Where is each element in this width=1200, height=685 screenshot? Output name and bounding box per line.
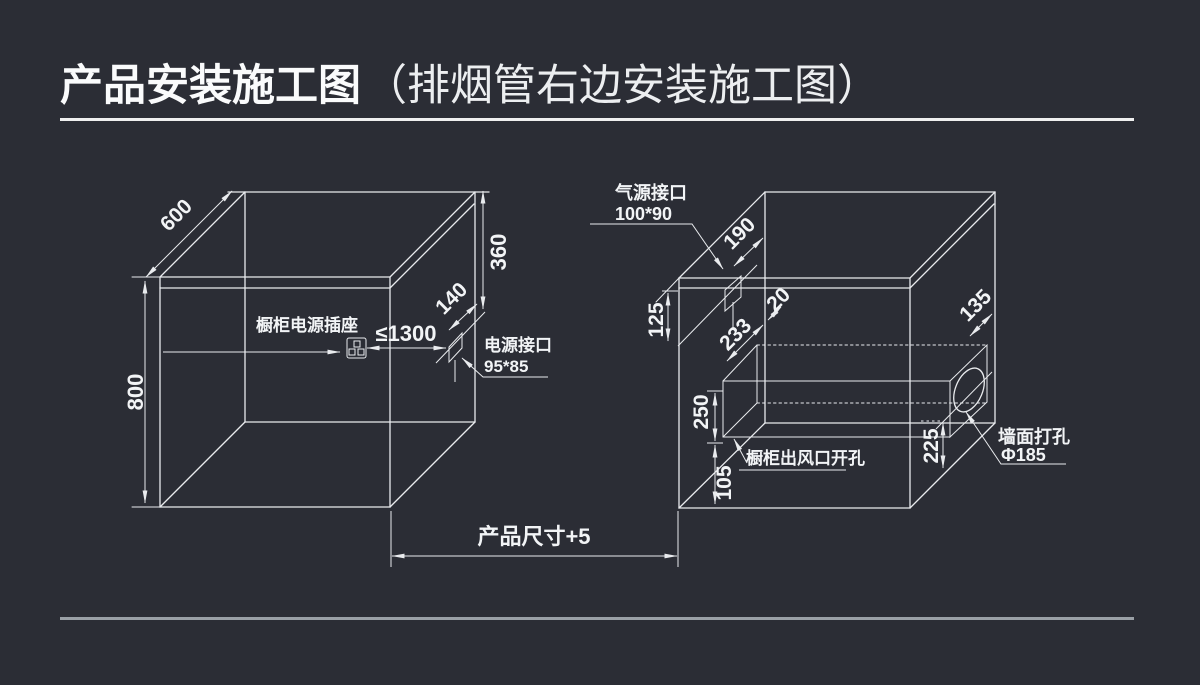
page-subtitle: （排烟管右边安装施工图） bbox=[364, 62, 880, 110]
gas-port-size: 100*90 bbox=[615, 204, 672, 224]
socket-icon bbox=[347, 338, 366, 358]
title-underline bbox=[60, 118, 1134, 121]
dim-hole-depth: 135 bbox=[955, 285, 996, 336]
socket-label: 橱柜电源插座 bbox=[256, 315, 358, 335]
dim-socket-distance-value: ≤1300 bbox=[375, 321, 436, 346]
left-cabinet: 600 800 360 140 橱柜电源插座 bbox=[123, 191, 552, 507]
page-header: 产品安装施工图 （排烟管右边安装施工图） bbox=[60, 62, 1134, 121]
dim-depth: 600 bbox=[146, 191, 232, 277]
page-title: 产品安装施工图 bbox=[60, 62, 361, 110]
dim-duct-drop-value: 250 bbox=[690, 394, 713, 429]
dim-duct-bottom-gap-value: 105 bbox=[713, 465, 736, 500]
dim-gas-port-depth-value: 190 bbox=[719, 213, 760, 254]
dim-duct-depth: 233 20 bbox=[715, 283, 795, 361]
dim-port-offset-value: 140 bbox=[431, 278, 472, 319]
left-cabinet-wireframe bbox=[132, 192, 489, 507]
power-port-size: 95*85 bbox=[484, 357, 528, 376]
gas-port-label: 气源接口 bbox=[614, 182, 687, 203]
dim-socket-distance: ≤1300 bbox=[367, 321, 446, 348]
dim-duct-drop: 250 105 bbox=[690, 391, 736, 504]
dim-top-clearance-value: 125 bbox=[645, 302, 668, 337]
dim-port-drop: 360 bbox=[483, 191, 511, 309]
drawing-canvas: 产品安装施工图 （排烟管右边安装施工图） 600 bbox=[0, 0, 1200, 685]
wall-hole-ellipse bbox=[948, 364, 991, 417]
dim-duct-depth-value: 233 bbox=[715, 314, 756, 355]
dim-height: 800 bbox=[123, 281, 148, 503]
dim-top-clearance: 125 bbox=[645, 291, 678, 341]
vent-label: 橱柜出风口开孔 bbox=[746, 448, 865, 468]
right-cabinet: 气源接口 100*90 190 125 233 20 250 bbox=[590, 182, 1070, 508]
footer-divider bbox=[60, 617, 1134, 620]
dim-port-offset: 140 bbox=[431, 278, 485, 363]
power-port-hole bbox=[449, 333, 462, 382]
installation-drawing-page: 产品安装施工图 （排烟管右边安装施工图） 600 bbox=[0, 0, 1200, 685]
dim-height-value: 800 bbox=[123, 374, 148, 411]
dim-depth-value: 600 bbox=[156, 195, 197, 236]
wall-hole-callout: 墙面打孔 Φ185 bbox=[966, 412, 1070, 465]
power-port-label: 电源接口 bbox=[484, 335, 552, 355]
wall-hole-label: 墙面打孔 bbox=[998, 426, 1070, 447]
footer-dim-label: 产品尺寸+5 bbox=[477, 524, 590, 549]
wall-hole-size: Φ185 bbox=[1001, 445, 1046, 465]
dim-port-drop-value: 360 bbox=[486, 234, 511, 271]
dim-hole-height: 225 bbox=[920, 421, 943, 468]
dim-hole-height-value: 225 bbox=[920, 428, 943, 463]
dim-hole-depth-value: 135 bbox=[955, 285, 996, 326]
power-socket: 橱柜电源插座 bbox=[163, 315, 366, 358]
footer-dimension: 产品尺寸+5 bbox=[391, 511, 678, 567]
gas-port-callout: 气源接口 100*90 bbox=[590, 182, 723, 269]
dim-gas-port-depth: 190 bbox=[719, 213, 763, 266]
vent-callout: 橱柜出风口开孔 bbox=[734, 439, 865, 470]
